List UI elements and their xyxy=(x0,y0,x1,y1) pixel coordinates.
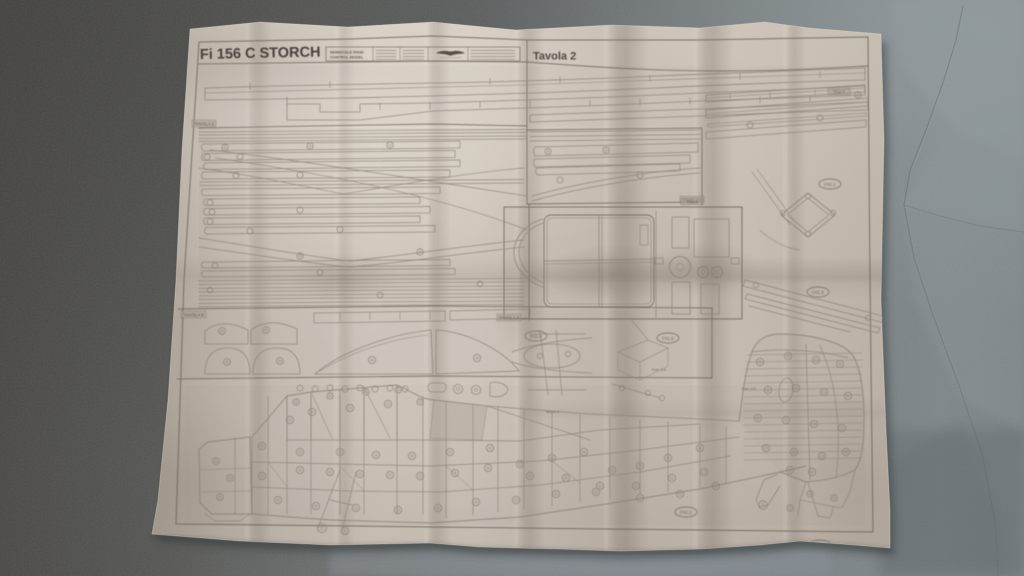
svg-text:FIG.2: FIG.2 xyxy=(680,510,692,515)
svg-text:TAV.4: TAV.4 xyxy=(686,199,698,204)
svg-text:Fi 156 C STORCH: Fi 156 C STORCH xyxy=(200,44,321,63)
svg-text:FIG.1: FIG.1 xyxy=(824,182,836,187)
svg-text:SEMISCALE RIGID: SEMISCALE RIGID xyxy=(330,51,364,55)
svg-text:CONTROL MODEL: CONTROL MODEL xyxy=(330,56,364,60)
svg-text:FIG.3: FIG.3 xyxy=(812,290,824,295)
svg-text:Part. 4-5: Part. 4-5 xyxy=(652,368,666,372)
svg-text:Tavola 4: Tavola 4 xyxy=(545,410,559,414)
svg-text:Tavola 2: Tavola 2 xyxy=(533,51,576,63)
svg-text:FIG.6: FIG.6 xyxy=(662,336,674,341)
svg-text:TAVOLA 2: TAVOLA 2 xyxy=(194,121,215,126)
svg-text:TAVOLA 5: TAVOLA 5 xyxy=(183,312,204,317)
svg-text:TAVOLA 4: TAVOLA 4 xyxy=(499,315,520,320)
svg-text:FIG.5: FIG.5 xyxy=(530,334,542,339)
svg-text:Part. 4-5: Part. 4-5 xyxy=(742,387,756,391)
